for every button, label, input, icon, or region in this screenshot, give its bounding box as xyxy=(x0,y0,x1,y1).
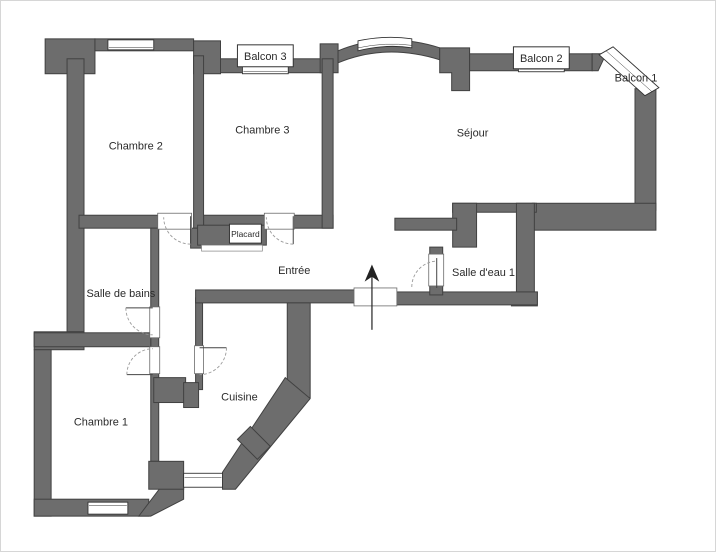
window-cuisine xyxy=(184,473,223,487)
wall-sejour-right xyxy=(635,89,656,211)
wall-sejour-bottom-left xyxy=(395,218,457,230)
door-arc-chambre1 xyxy=(127,349,153,375)
wall-sde-right xyxy=(516,203,534,298)
door-gap-salle-de-bains xyxy=(150,307,160,338)
wall-entree-bottom-right xyxy=(396,292,537,305)
floor-plan-svg: Balcon 3 Balcon 2 Balcon 1 Chambre 2 Cha… xyxy=(1,1,715,551)
wall-divider-ch3-sejour xyxy=(322,59,333,228)
entree-label: Entrée xyxy=(278,265,310,277)
wall-ch1-left xyxy=(34,350,51,516)
wall-sdb-top xyxy=(79,215,159,228)
wall-bottom-right-band xyxy=(532,203,656,230)
wall-ch1-top xyxy=(34,333,151,347)
balcon2-label: Balcon 2 xyxy=(520,53,563,65)
wall-left-upper xyxy=(67,59,84,332)
window-chambre1 xyxy=(88,502,128,514)
wall-minihall-chunk-b xyxy=(184,383,199,408)
placard-closet-interior xyxy=(202,245,263,251)
walls xyxy=(34,39,656,516)
entry-door-threshold xyxy=(354,288,397,306)
sejour-label: Séjour xyxy=(457,128,489,140)
wall-pier-curve-right xyxy=(440,48,470,91)
window-balcon1-line xyxy=(606,51,652,92)
door-gap-cuisine xyxy=(195,346,204,374)
balcon1-label: Balcon 1 xyxy=(615,73,658,85)
door-arc-salle-de-bains xyxy=(126,308,153,335)
wall-minihall-chunk-a xyxy=(154,378,186,403)
window-chambre2 xyxy=(108,40,154,50)
wall-divider-ch2-ch3 xyxy=(194,56,204,228)
chambre2-label: Chambre 2 xyxy=(109,140,163,152)
chambre1-label: Chambre 1 xyxy=(74,416,128,428)
wall-entree-bottom-left xyxy=(196,290,355,303)
cuisine-label: Cuisine xyxy=(221,392,258,404)
door-gap-chambre2 xyxy=(158,213,192,229)
placard-label-front: Placard xyxy=(231,229,260,239)
balcon3-label: Balcon 3 xyxy=(244,51,287,63)
door-gap-chambre1 xyxy=(150,347,160,374)
salle-de-bains-label: Salle de bains xyxy=(86,288,155,300)
wall-bottom-chunk xyxy=(149,461,184,489)
salle-deau-label: Salle d'eau 1 xyxy=(452,267,515,279)
wall-cuisine-left-upper xyxy=(196,298,203,348)
wall-sdb-right-mid xyxy=(151,337,159,348)
door-gap-chambre3 xyxy=(264,213,294,229)
chambre3-label: Chambre 3 xyxy=(235,125,289,137)
floor-plan: Balcon 3 Balcon 2 Balcon 1 Chambre 2 Cha… xyxy=(0,0,716,552)
